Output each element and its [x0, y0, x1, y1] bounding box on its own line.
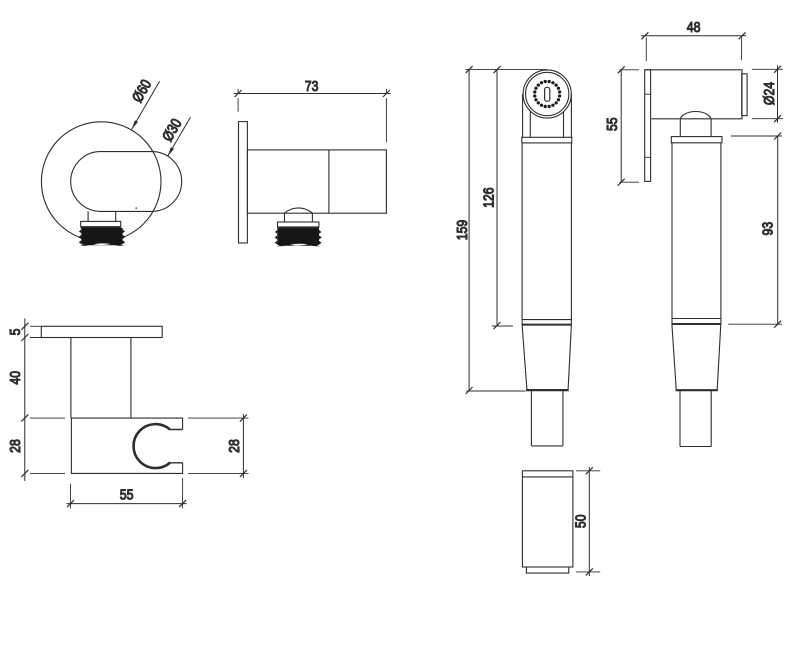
svg-text:48: 48 [687, 19, 701, 35]
svg-text:50: 50 [572, 514, 588, 528]
svg-text:28: 28 [7, 439, 23, 453]
svg-text:40: 40 [7, 371, 23, 385]
svg-text:126: 126 [480, 187, 496, 208]
svg-text:73: 73 [305, 78, 319, 94]
svg-text:159: 159 [454, 220, 470, 241]
svg-text:5: 5 [7, 328, 23, 335]
svg-text:Ø24: Ø24 [761, 82, 777, 106]
svg-text:Ø30: Ø30 [159, 116, 185, 145]
svg-text:28: 28 [226, 439, 242, 453]
svg-text:55: 55 [604, 117, 620, 131]
svg-text:Ø60: Ø60 [129, 76, 155, 105]
svg-text:55: 55 [120, 487, 134, 503]
svg-text:93: 93 [760, 221, 776, 235]
